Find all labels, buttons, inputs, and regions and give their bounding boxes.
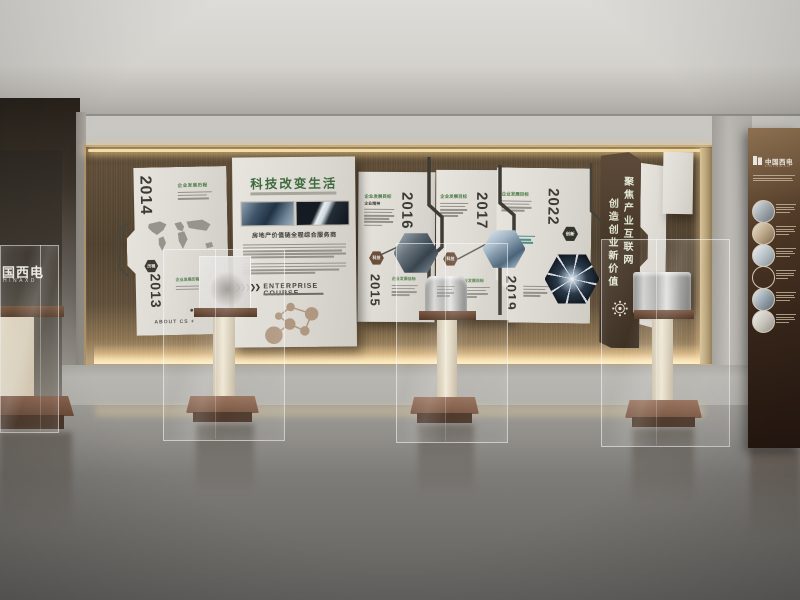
board-photo-text-6	[776, 313, 796, 324]
left-case-glass-edge	[40, 245, 41, 431]
reflection-left-case	[0, 432, 72, 527]
board-photo-circle-2	[752, 222, 775, 245]
glass-case-3	[601, 239, 730, 447]
glass-case-3-edge	[656, 239, 657, 445]
glass-case-1	[163, 249, 285, 441]
board-photo-circle-4	[752, 266, 775, 289]
left-case-glass	[0, 245, 59, 433]
brand-board: 中国西电 CHINAXD	[748, 128, 800, 448]
glass-case-1-edge	[215, 249, 216, 439]
board-photo-circle-6	[752, 310, 775, 333]
exhibition-hall-scene: 2014 企业发展历程 历程 2013 企业发展历程 ABOUT CS +	[0, 0, 800, 600]
ceiling	[0, 0, 800, 118]
board-photo-text-1	[776, 203, 796, 214]
glass-case-2	[396, 243, 508, 443]
board-photo-circle-3	[752, 244, 775, 267]
left-recess-edge	[76, 112, 86, 368]
board-photo-text-4	[776, 269, 796, 280]
board-photo-text-2	[776, 225, 796, 236]
glass-case-2-edge	[445, 243, 446, 441]
board-photo-text-5	[776, 291, 796, 302]
board-photo-circle-5	[752, 288, 775, 311]
board-photo-text-3	[776, 247, 796, 258]
reflection-brand-board	[750, 448, 800, 538]
hex-badge-keji-1-text: 科技	[373, 255, 381, 261]
brand-board-intro-lines	[753, 174, 795, 183]
board-photo-circle-1	[752, 200, 775, 223]
brand-logo-text-en: CHINAXD	[765, 164, 791, 168]
